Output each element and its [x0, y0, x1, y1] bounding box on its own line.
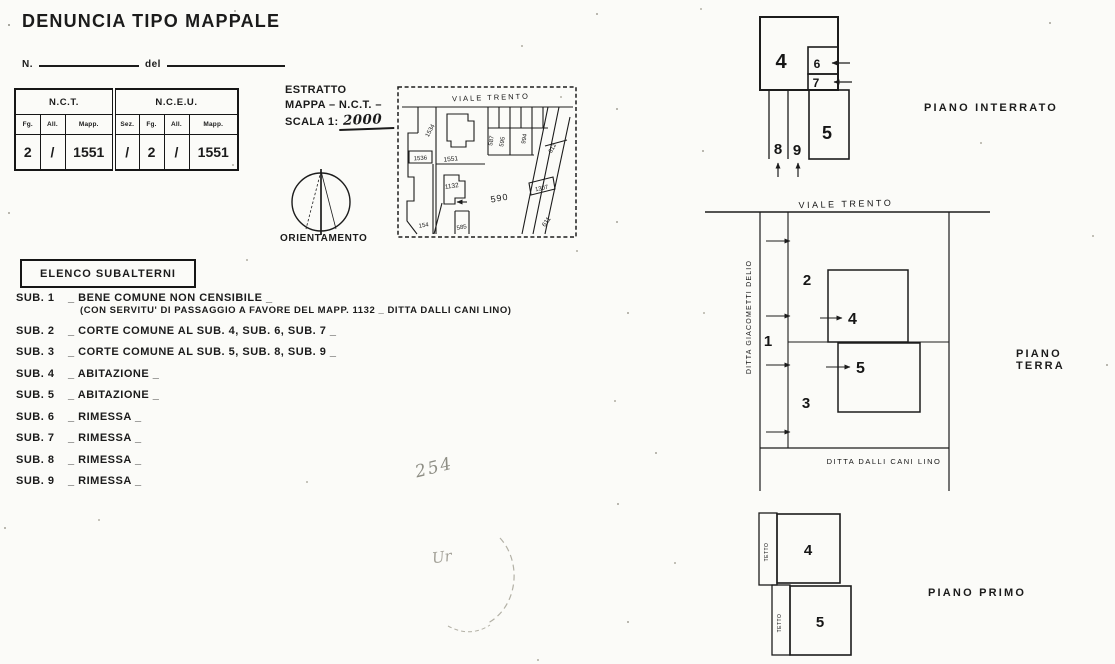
cadastral-table: N.C.T. N.C.E.U. Fg. All. Mapp. Sez. Fg. … — [14, 88, 239, 171]
parcel-label: 994 — [521, 133, 529, 145]
unit-number: 5 — [816, 614, 824, 631]
list-item: SUB. 9_ RIMESSA _ — [16, 475, 606, 488]
owner-bottom-label: DITTA DALLI CANI LINO — [827, 457, 942, 466]
unit-number: 1 — [764, 333, 772, 350]
parcel-label: 1534 — [425, 123, 437, 138]
table-value-row: 2 / 1551 / 2 / 1551 — [15, 135, 238, 171]
unit-number: 3 — [802, 395, 810, 412]
plan-piano-terra: VIALE TRENTO DITTA GIACOMETTI DELIO DITT… — [700, 195, 1000, 495]
piano-interrato-label: PIANO INTERRATO — [924, 102, 1058, 114]
col-all-nct: All. — [40, 115, 65, 135]
tetto-label: TETTO — [777, 614, 783, 633]
estratto-block: ESTRATTO MAPPA – N.C.T. – SCALA 1: 2000 — [285, 83, 394, 130]
plan-piano-interrato: 4 6 7 5 8 9 — [753, 6, 879, 178]
sub-label: SUB. 8 — [16, 454, 68, 467]
sub-label: SUB. 5 — [16, 389, 68, 402]
unit4-outline — [828, 270, 908, 342]
list-item: SUB. 1_ BENE COMUNE NON CENSIBILE _ (CON… — [16, 292, 606, 316]
orientamento-label: ORIENTAMENTO — [280, 233, 367, 244]
col-sez: Sez. — [114, 115, 139, 135]
col-fg-nceu: Fg. — [139, 115, 164, 135]
sub-label: SUB. 3 — [16, 346, 68, 359]
unit-number: 9 — [793, 142, 801, 159]
unit-number: 4 — [775, 51, 787, 73]
scale-value-handwritten: 2000 — [338, 112, 394, 131]
sub-desc: _ ABITAZIONE _ — [68, 368, 159, 380]
list-item: SUB. 7_ RIMESSA _ — [16, 432, 606, 445]
unit4-outline — [760, 17, 838, 90]
unit6-outline — [808, 47, 838, 74]
n-blank-line — [39, 56, 139, 67]
del-label: del — [145, 59, 161, 70]
estratto-line1: ESTRATTO — [285, 83, 394, 98]
list-item: SUB. 6_ RIMESSA _ — [16, 411, 606, 424]
piano-primo-label: PIANO PRIMO — [928, 587, 1026, 599]
tetto-label: TETTO — [764, 543, 770, 562]
scala-label: SCALA 1: — [285, 115, 339, 130]
table-group-row: N.C.T. N.C.E.U. — [15, 89, 238, 115]
parcel-label: 595 — [499, 136, 507, 148]
val-all-nceu: / — [164, 135, 189, 171]
sub-desc: _ RIMESSA _ — [68, 475, 142, 487]
parcel-label: 612 — [548, 142, 558, 154]
sub-label: SUB. 4 — [16, 368, 68, 381]
number-line: N.del — [22, 56, 291, 70]
elenco-subalterni-box: ELENCO SUBALTERNI — [20, 259, 196, 288]
sub-desc: _ BENE COMUNE NON CENSIBILE _ — [68, 292, 273, 304]
parcel-label: 611 — [541, 216, 553, 229]
col-all-nceu: All. — [164, 115, 189, 135]
sub-desc: _ RIMESSA _ — [68, 432, 142, 444]
val-mapp-nct: 1551 — [65, 135, 114, 171]
sub-note: (CON SERVITU' DI PASSAGGIO A FAVORE DEL … — [80, 306, 606, 316]
parcel-label: 590 — [490, 192, 509, 205]
sub-label: SUB. 1 — [16, 292, 68, 305]
list-item: SUB. 3_ CORTE COMUNE AL SUB. 5, SUB. 8, … — [16, 346, 606, 359]
parcel-label: 154 — [418, 222, 430, 230]
list-item: SUB. 8_ RIMESSA _ — [16, 454, 606, 467]
sub-desc: _ ABITAZIONE _ — [68, 389, 159, 401]
compass-fan-right — [321, 171, 336, 229]
parcel-label: 1536 — [414, 155, 428, 162]
stamp-remnant — [430, 528, 525, 638]
unit-number: 5 — [856, 360, 865, 377]
list-item: SUB. 2_ CORTE COMUNE AL SUB. 4, SUB. 6, … — [16, 325, 606, 338]
col-mapp-nct: Mapp. — [65, 115, 114, 135]
sub-desc: _ RIMESSA _ — [68, 411, 142, 423]
sub-desc: _ CORTE COMUNE AL SUB. 4, SUB. 6, SUB. 7… — [68, 325, 337, 337]
val-mapp-nceu: 1551 — [189, 135, 238, 171]
map-extract: VIALE TRENTO 1534 1536 1551 1132 587 — [396, 84, 580, 244]
val-fg-nceu: 2 — [139, 135, 164, 171]
sub-label: SUB. 6 — [16, 411, 68, 424]
unit-number: 8 — [774, 141, 782, 158]
scanned-document: DENUNCIA TIPO MAPPALE N.del N.C.T. N.C.E… — [0, 0, 1115, 664]
extract-street-label: VIALE TRENTO — [452, 92, 530, 104]
del-blank-line — [167, 56, 285, 67]
parcel-label: 1132 — [444, 182, 459, 191]
group-nceu: N.C.E.U. — [114, 89, 238, 115]
unit-number: 7 — [813, 76, 820, 90]
scan-speckles — [0, 0, 2, 2]
sub-label: SUB. 2 — [16, 325, 68, 338]
owner-left-label: DITTA GIACOMETTI DELIO — [746, 260, 753, 374]
col-mapp-nceu: Mapp. — [189, 115, 238, 135]
unit-number: 5 — [822, 123, 832, 143]
plan-piano-primo: TETTO TETTO 4 5 — [755, 508, 865, 660]
subalterni-list: SUB. 1_ BENE COMUNE NON CENSIBILE _ (CON… — [16, 292, 606, 497]
piano-terra-label: PIANO TERRA — [1016, 348, 1115, 372]
unit5-outline — [838, 343, 920, 412]
sub-desc: _ RIMESSA _ — [68, 454, 142, 466]
n-label: N. — [22, 59, 33, 70]
terra-street-label: VIALE TRENTO — [798, 198, 893, 210]
parcel-label: 1551 — [443, 155, 458, 164]
list-item: SUB. 5_ ABITAZIONE _ — [16, 389, 606, 402]
primo-walls — [759, 513, 851, 655]
compass-fan-left — [306, 171, 321, 229]
unit-number: 4 — [848, 311, 857, 328]
page-title: DENUNCIA TIPO MAPPALE — [22, 11, 280, 32]
sub-label: SUB. 7 — [16, 432, 68, 445]
table-header-row: Fg. All. Mapp. Sez. Fg. All. Mapp. — [15, 115, 238, 135]
sub-label: SUB. 9 — [16, 475, 68, 488]
val-all-nct: / — [40, 135, 65, 171]
sub-desc: _ CORTE COMUNE AL SUB. 5, SUB. 8, SUB. 9… — [68, 346, 337, 358]
orientation-compass-icon — [288, 166, 356, 236]
parcel-label: 587 — [488, 135, 496, 147]
extract-parcel-lines — [402, 107, 573, 234]
group-nct: N.C.T. — [15, 89, 114, 115]
list-item: SUB. 4_ ABITAZIONE _ — [16, 368, 606, 381]
col-fg-nct: Fg. — [15, 115, 40, 135]
unit-number: 6 — [814, 57, 821, 71]
val-fg-nct: 2 — [15, 135, 40, 171]
unit-number: 4 — [804, 542, 813, 559]
parcel-label: 585 — [456, 224, 468, 232]
val-sez: / — [114, 135, 139, 171]
unit-number: 2 — [803, 272, 811, 289]
